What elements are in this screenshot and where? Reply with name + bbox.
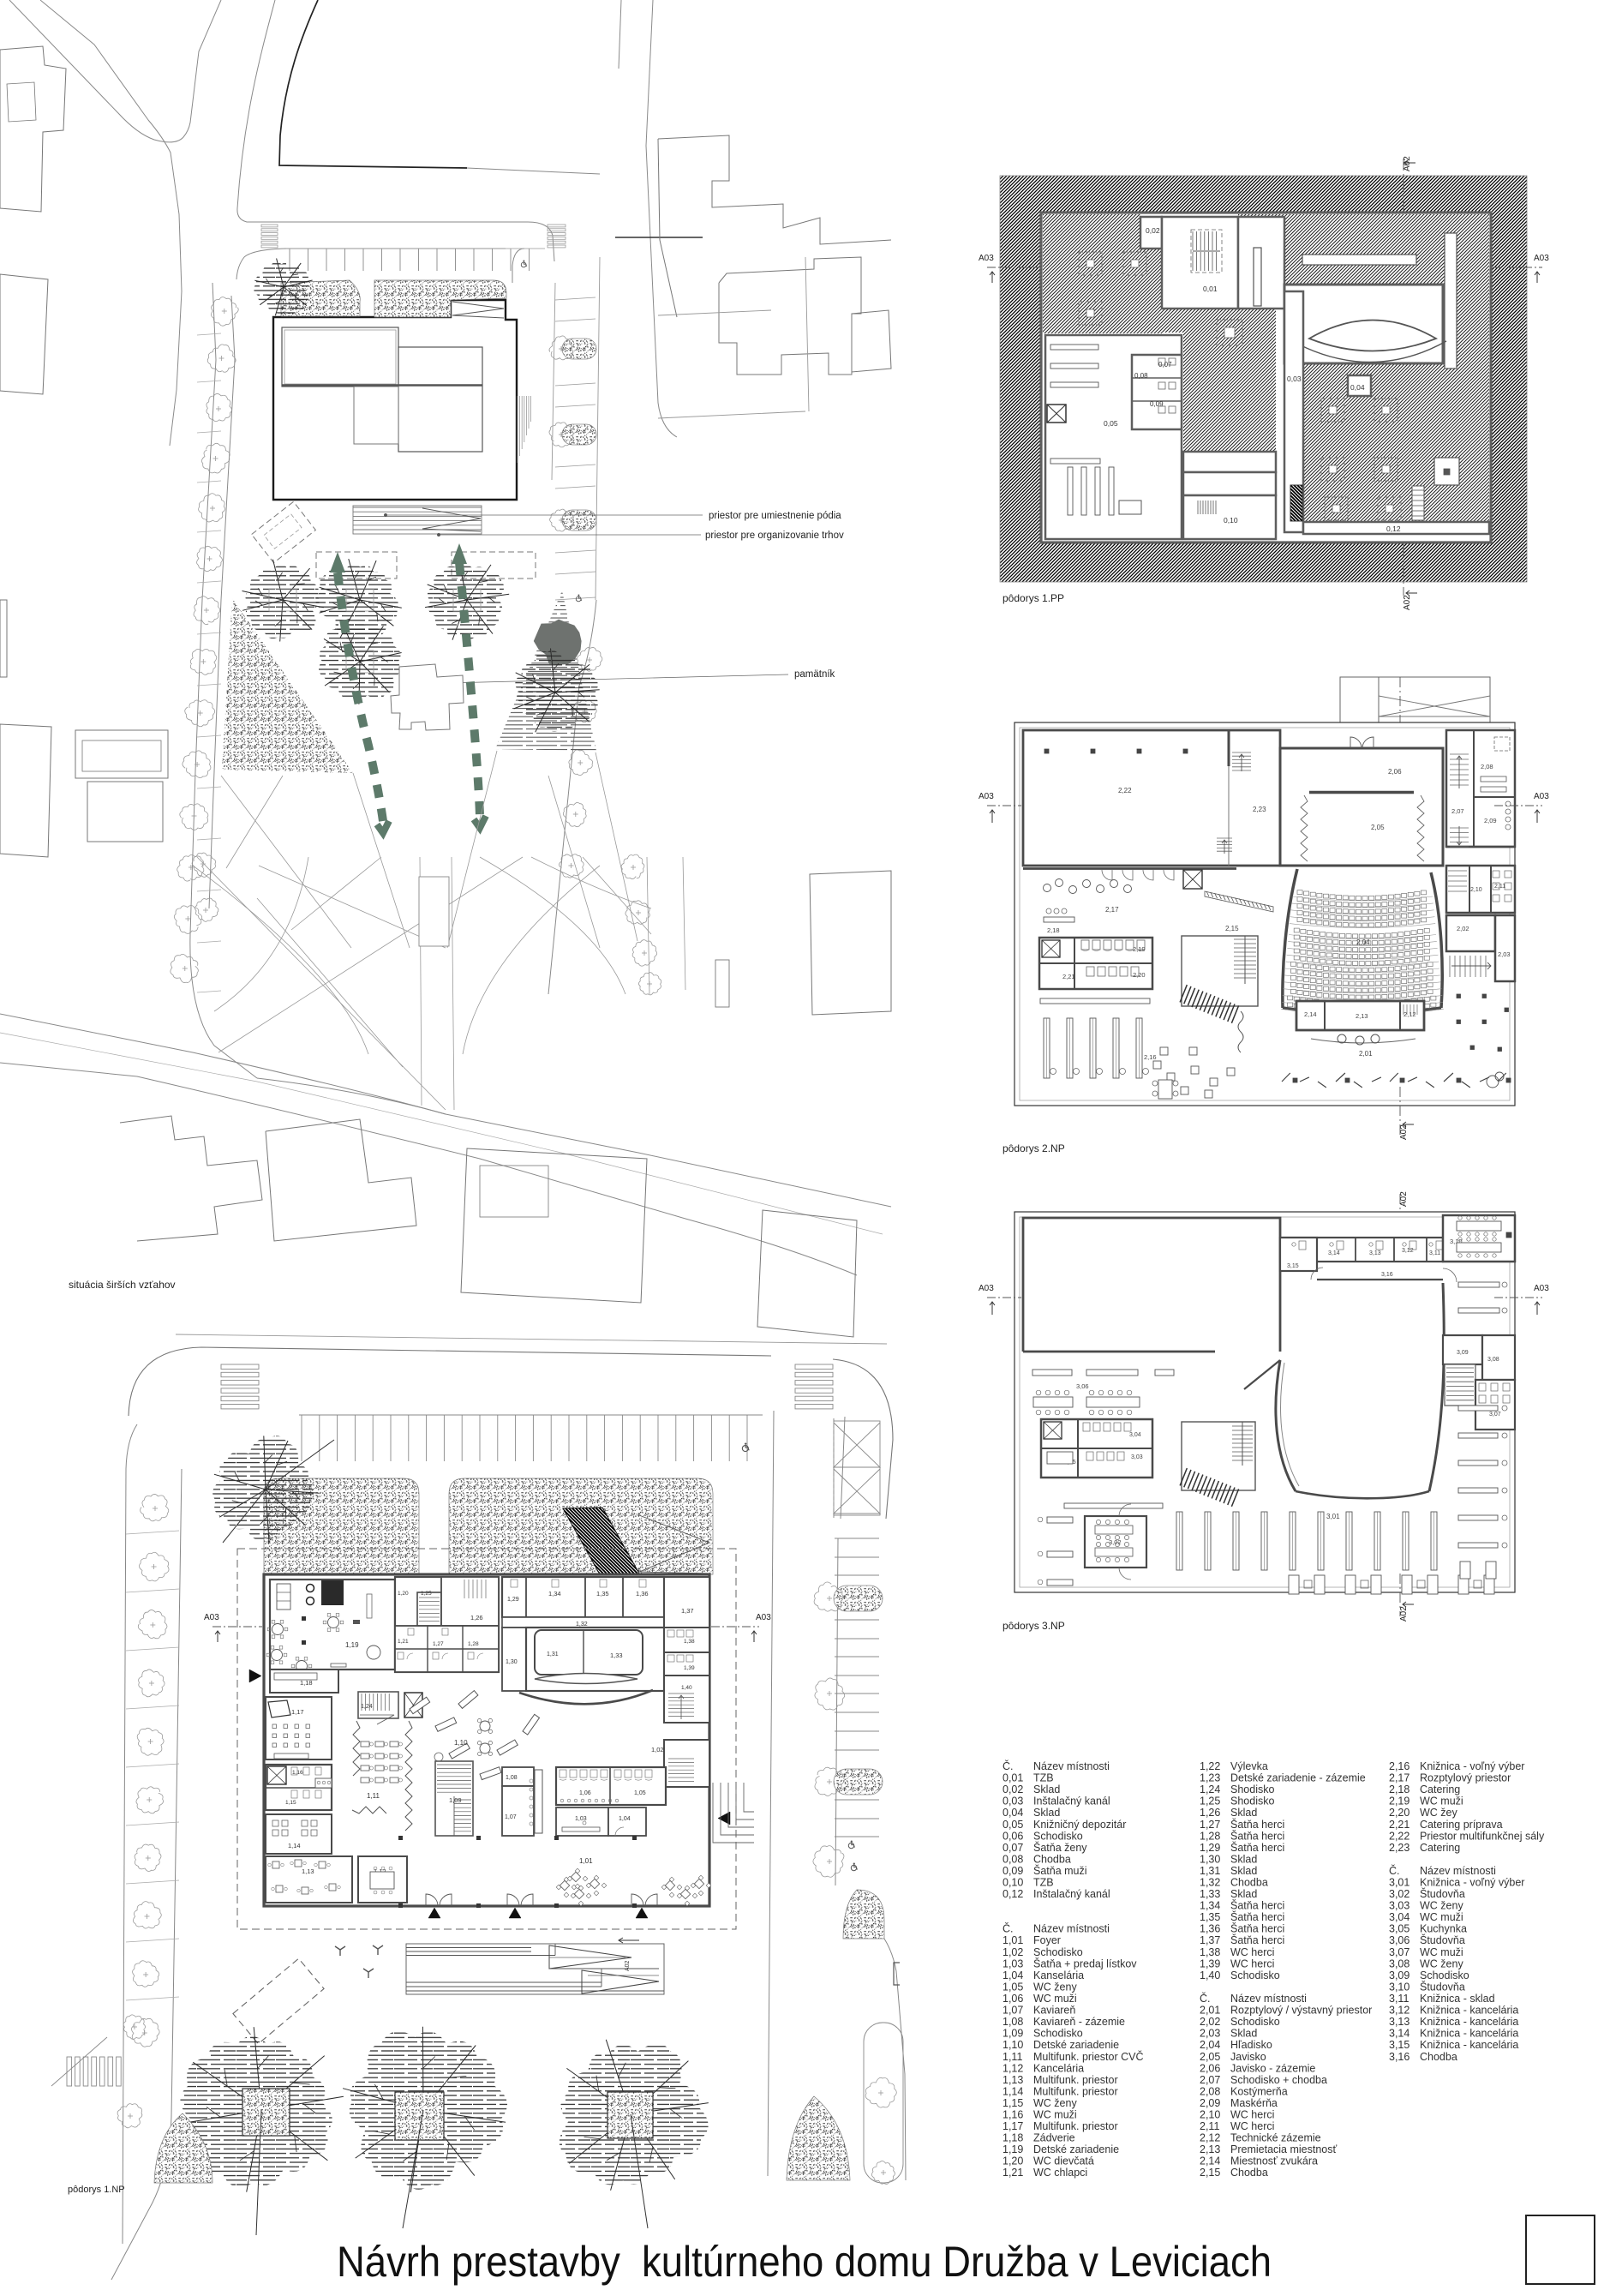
svg-text:A02: A02: [1403, 156, 1412, 171]
svg-text:Schodisko: Schodisko: [1230, 2016, 1280, 2028]
svg-text:2,07: 2,07: [1451, 807, 1464, 815]
svg-text:Sklad: Sklad: [1230, 1865, 1257, 1877]
svg-text:3,15: 3,15: [1287, 1263, 1299, 1269]
svg-text:WC ženy: WC ženy: [1420, 1957, 1463, 1969]
svg-text:1,36: 1,36: [636, 1590, 649, 1598]
svg-text:Šatňa herci: Šatňa herci: [1230, 1922, 1284, 1935]
svg-text:2,04: 2,04: [1200, 2039, 1220, 2051]
svg-text:priestor pre organizovanie trh: priestor pre organizovanie trhov: [705, 531, 844, 541]
svg-text:Kancelária: Kancelária: [1033, 2062, 1084, 2074]
svg-text:2,19: 2,19: [1389, 1795, 1409, 1807]
svg-text:3,09: 3,09: [1389, 1969, 1409, 1981]
svg-text:3,13: 3,13: [1369, 1250, 1381, 1256]
svg-text:Inštalačný kanál: Inštalačný kanál: [1033, 1888, 1110, 1900]
svg-text:2,18: 2,18: [1047, 926, 1060, 934]
svg-text:1,31: 1,31: [547, 1652, 559, 1658]
svg-text:pamätník: pamätník: [794, 669, 835, 680]
svg-text:WC herci: WC herci: [1230, 2120, 1274, 2132]
svg-text:1,03: 1,03: [1002, 1957, 1023, 1969]
svg-text:3,11: 3,11: [1429, 1250, 1440, 1256]
svg-text:Chodba: Chodba: [1230, 2167, 1268, 2179]
svg-text:2,19: 2,19: [1133, 945, 1146, 953]
svg-text:1,05: 1,05: [634, 1790, 646, 1796]
svg-text:3,14: 3,14: [1328, 1250, 1340, 1256]
svg-text:A02: A02: [1403, 595, 1412, 610]
svg-text:1,39: 1,39: [1200, 1957, 1220, 1969]
svg-text:3,12: 3,12: [1389, 2005, 1409, 2017]
svg-text:0,12: 0,12: [1386, 525, 1401, 533]
svg-text:1,23: 1,23: [1200, 1772, 1220, 1784]
svg-text:0,02: 0,02: [1146, 226, 1160, 235]
svg-text:Detské zariadenie - zázemie: Detské zariadenie - zázemie: [1230, 1772, 1366, 1784]
svg-text:1,17: 1,17: [1002, 2120, 1023, 2132]
svg-text:Sklad: Sklad: [1033, 1783, 1060, 1795]
svg-text:1,04: 1,04: [1002, 1969, 1023, 1981]
svg-text:Zádverie: Zádverie: [1033, 2132, 1075, 2144]
svg-text:Rozptylový priestor: Rozptylový priestor: [1420, 1772, 1511, 1784]
svg-text:0,08: 0,08: [1002, 1853, 1023, 1865]
svg-text:1,12: 1,12: [1002, 2062, 1023, 2074]
svg-text:1,36: 1,36: [1200, 1923, 1220, 1935]
svg-text:Chodba: Chodba: [1230, 1877, 1268, 1889]
svg-text:1,33: 1,33: [610, 1652, 623, 1659]
svg-text:pôdorys 1.NP: pôdorys 1.NP: [68, 2185, 125, 2195]
svg-text:Maskérňa: Maskérňa: [1230, 2097, 1278, 2109]
svg-text:1,13: 1,13: [302, 1867, 314, 1875]
svg-text:Návrh prestavby kultúrneho do: Návrh prestavby kultúrneho domu Družba v…: [337, 2238, 1272, 2286]
svg-text:WC dievčatá: WC dievčatá: [1033, 2155, 1094, 2167]
svg-text:Název místnosti: Název místnosti: [1033, 1923, 1110, 1935]
svg-text:Kuchynka: Kuchynka: [1420, 1923, 1467, 1935]
svg-text:1,10: 1,10: [454, 1739, 468, 1747]
svg-text:1,38: 1,38: [684, 1639, 695, 1645]
svg-text:2,17: 2,17: [1105, 906, 1119, 914]
svg-text:Šatňa ženy: Šatňa ženy: [1033, 1841, 1087, 1854]
svg-text:Multifunk. priestor: Multifunk. priestor: [1033, 2085, 1118, 2097]
svg-text:2,16: 2,16: [1389, 1760, 1409, 1772]
svg-text:1,14: 1,14: [288, 1842, 301, 1849]
svg-text:2,11: 2,11: [1494, 884, 1505, 890]
svg-text:1,02: 1,02: [651, 1746, 664, 1753]
svg-text:1,37: 1,37: [681, 1607, 694, 1615]
svg-text:A02: A02: [1399, 1606, 1409, 1622]
svg-text:Detské zariadenie: Detské zariadenie: [1033, 2143, 1119, 2155]
svg-text:1,01: 1,01: [579, 1857, 593, 1865]
svg-text:1,35: 1,35: [1200, 1911, 1220, 1923]
svg-text:A03: A03: [1534, 254, 1549, 263]
svg-text:2,05: 2,05: [1200, 2051, 1220, 2063]
svg-text:1,13: 1,13: [1002, 2074, 1023, 2086]
svg-text:A03: A03: [756, 1613, 771, 1622]
svg-text:0,01: 0,01: [1203, 285, 1218, 293]
svg-text:0,04: 0,04: [1002, 1807, 1023, 1819]
svg-text:0,06: 0,06: [1002, 1830, 1023, 1842]
svg-text:2,10: 2,10: [1200, 2109, 1220, 2121]
svg-text:WC muži: WC muži: [1033, 2109, 1077, 2121]
svg-text:1,31: 1,31: [1200, 1865, 1220, 1877]
svg-text:3,15: 3,15: [1389, 2039, 1409, 2051]
svg-text:Kostýmerňa: Kostýmerňa: [1230, 2085, 1288, 2097]
svg-text:1,28: 1,28: [1200, 1830, 1220, 1842]
svg-text:2,13: 2,13: [1200, 2143, 1220, 2155]
svg-text:Č.: Č.: [1002, 1922, 1014, 1935]
svg-text:3,06: 3,06: [1389, 1934, 1409, 1946]
svg-text:1,27: 1,27: [433, 1641, 444, 1647]
svg-text:3,07: 3,07: [1389, 1946, 1409, 1958]
svg-text:Multifunk. priestor: Multifunk. priestor: [1033, 2120, 1118, 2132]
svg-text:2,12: 2,12: [1200, 2132, 1220, 2144]
svg-text:2,21: 2,21: [1389, 1819, 1409, 1831]
svg-text:2,06: 2,06: [1200, 2062, 1220, 2074]
svg-text:pôdorys 2.NP: pôdorys 2.NP: [1002, 1142, 1065, 1154]
svg-text:2,03: 2,03: [1200, 2028, 1220, 2040]
svg-text:2,21: 2,21: [1062, 973, 1075, 980]
svg-text:2,22: 2,22: [1389, 1830, 1409, 1842]
svg-text:Technické zázemie: Technické zázemie: [1230, 2132, 1321, 2144]
svg-text:1,40: 1,40: [681, 1685, 692, 1691]
svg-text:3,10: 3,10: [1389, 1981, 1409, 1993]
svg-text:0,03: 0,03: [1287, 375, 1302, 383]
svg-text:Sklad: Sklad: [1230, 1853, 1257, 1865]
svg-text:Rozptylový / výstavný priestor: Rozptylový / výstavný priestor: [1230, 2005, 1372, 2017]
svg-text:1,07: 1,07: [1002, 2005, 1023, 2017]
svg-text:1,26: 1,26: [470, 1614, 483, 1622]
svg-text:WC muži: WC muži: [1420, 1946, 1463, 1958]
svg-text:0,03: 0,03: [1002, 1795, 1023, 1807]
svg-text:Č.: Č.: [1200, 1992, 1211, 2005]
svg-text:Knižnica - voľný výber: Knižnica - voľný výber: [1420, 1877, 1524, 1889]
svg-text:0,10: 0,10: [1224, 516, 1238, 525]
svg-text:1,15: 1,15: [1002, 2097, 1023, 2109]
svg-text:Detské zariadenie: Detské zariadenie: [1033, 2039, 1119, 2051]
svg-text:Schodisko: Schodisko: [1420, 1969, 1469, 1981]
svg-text:Kanselária: Kanselária: [1033, 1969, 1084, 1981]
svg-text:WC muži: WC muži: [1033, 1993, 1077, 2005]
svg-text:3,03: 3,03: [1131, 1454, 1143, 1460]
svg-text:3,06: 3,06: [1076, 1382, 1089, 1390]
svg-text:Chodba: Chodba: [1033, 1853, 1071, 1865]
svg-text:2,18: 2,18: [1389, 1783, 1409, 1795]
svg-text:WC muži: WC muži: [1420, 1911, 1463, 1923]
svg-text:Šatňa herci: Šatňa herci: [1230, 1933, 1284, 1946]
svg-text:Hľadisko: Hľadisko: [1230, 2039, 1272, 2051]
svg-text:2,14: 2,14: [1304, 1010, 1317, 1018]
svg-text:Šatňa + predaj lístkov: Šatňa + predaj lístkov: [1033, 1957, 1137, 1969]
svg-text:1,17: 1,17: [291, 1708, 304, 1716]
svg-text:1,39: 1,39: [684, 1665, 695, 1671]
svg-text:Catering: Catering: [1420, 1783, 1460, 1795]
svg-text:0,07: 0,07: [1002, 1842, 1023, 1854]
svg-text:3,05: 3,05: [1389, 1923, 1409, 1935]
svg-text:2,04: 2,04: [1356, 938, 1370, 946]
svg-text:A03: A03: [979, 792, 994, 801]
svg-text:Schodisko: Schodisko: [1033, 1946, 1083, 1958]
svg-text:Catering príprava: Catering príprava: [1420, 1819, 1503, 1831]
svg-text:0,09: 0,09: [1002, 1865, 1023, 1877]
svg-text:0,12: 0,12: [1002, 1888, 1023, 1900]
svg-text:Javisko: Javisko: [1230, 2051, 1266, 2063]
svg-text:3,12: 3,12: [1402, 1248, 1414, 1254]
svg-text:1,40: 1,40: [1200, 1969, 1220, 1981]
svg-text:A03: A03: [1534, 1284, 1549, 1293]
svg-text:1,16: 1,16: [1002, 2109, 1023, 2121]
svg-text:Študovňa: Študovňa: [1420, 1980, 1465, 1993]
svg-text:3,03: 3,03: [1389, 1900, 1409, 1912]
svg-text:WC herci: WC herci: [1230, 1946, 1274, 1958]
svg-text:1,34: 1,34: [548, 1590, 561, 1598]
svg-text:3,08: 3,08: [1487, 1357, 1499, 1363]
svg-text:2,02: 2,02: [1200, 2016, 1220, 2028]
svg-text:1,38: 1,38: [1200, 1946, 1220, 1958]
svg-text:1,34: 1,34: [1200, 1900, 1220, 1912]
svg-text:1,37: 1,37: [1200, 1934, 1220, 1946]
svg-text:0,10: 0,10: [1002, 1877, 1023, 1889]
svg-text:WC ženy: WC ženy: [1033, 1981, 1077, 1993]
svg-text:Študovňa: Študovňa: [1420, 1887, 1465, 1900]
svg-text:2,13: 2,13: [1356, 1012, 1368, 1020]
svg-text:2,11: 2,11: [1200, 2120, 1219, 2132]
svg-text:Sklad: Sklad: [1230, 2028, 1257, 2040]
svg-text:Šatňa herci: Šatňa herci: [1230, 1829, 1284, 1842]
svg-text:2,02: 2,02: [1457, 925, 1469, 932]
svg-text:2,10: 2,10: [1470, 887, 1482, 893]
svg-text:Chodba: Chodba: [1420, 2051, 1457, 2063]
svg-text:Inštalačný kanál: Inštalačný kanál: [1033, 1795, 1110, 1807]
svg-text:Kaviareň: Kaviareň: [1033, 2005, 1075, 2017]
svg-text:2,23: 2,23: [1389, 1842, 1409, 1854]
svg-text:2,08: 2,08: [1481, 763, 1493, 770]
svg-text:3,04: 3,04: [1389, 1911, 1409, 1923]
svg-text:WC herci: WC herci: [1230, 1957, 1274, 1969]
svg-text:2,08: 2,08: [1200, 2085, 1220, 2097]
svg-text:Kaviareň - zázemie: Kaviareň - zázemie: [1033, 2016, 1125, 2028]
svg-text:1,35: 1,35: [596, 1590, 609, 1598]
svg-text:1,29: 1,29: [507, 1597, 519, 1603]
svg-text:3,09: 3,09: [1457, 1350, 1469, 1356]
svg-text:Č.: Č.: [1002, 1759, 1014, 1772]
svg-text:1,24: 1,24: [361, 1704, 373, 1710]
svg-text:Multifunk. priestor CVČ: Multifunk. priestor CVČ: [1033, 2050, 1144, 2063]
svg-text:0,09: 0,09: [1150, 400, 1164, 408]
svg-text:1,19: 1,19: [1002, 2143, 1023, 2155]
svg-text:Šatňa herci: Šatňa herci: [1230, 1899, 1284, 1912]
svg-text:WC muži: WC muži: [1420, 1795, 1463, 1807]
svg-text:Catering: Catering: [1420, 1842, 1460, 1854]
svg-text:1,32: 1,32: [1200, 1877, 1220, 1889]
svg-text:3,16: 3,16: [1381, 1272, 1393, 1278]
svg-text:2,01: 2,01: [1200, 2005, 1220, 2017]
svg-text:1,04: 1,04: [619, 1816, 631, 1822]
svg-text:0,02: 0,02: [1002, 1783, 1023, 1795]
svg-text:Knižnica - voľný výber: Knižnica - voľný výber: [1420, 1760, 1524, 1772]
svg-text:2,23: 2,23: [1253, 806, 1266, 813]
svg-text:2,05: 2,05: [1371, 824, 1385, 831]
svg-text:1,01: 1,01: [1002, 1934, 1023, 1946]
svg-text:1,19: 1,19: [345, 1641, 359, 1649]
svg-text:Knižnica - kancelária: Knižnica - kancelária: [1420, 2039, 1518, 2051]
svg-text:Název místnosti: Název místnosti: [1230, 1993, 1307, 2005]
svg-text:WC chlapci: WC chlapci: [1033, 2167, 1087, 2179]
svg-text:1,33: 1,33: [1200, 1888, 1220, 1900]
svg-text:1,24: 1,24: [1200, 1783, 1220, 1795]
svg-text:2,09: 2,09: [1484, 817, 1497, 824]
svg-text:A02: A02: [625, 1960, 631, 1971]
svg-text:Schodisko: Schodisko: [1230, 1969, 1280, 1981]
svg-text:1,28: 1,28: [468, 1641, 479, 1647]
svg-text:1,30: 1,30: [506, 1659, 518, 1665]
svg-text:1,11: 1,11: [367, 1792, 380, 1800]
svg-text:2,07: 2,07: [1200, 2074, 1220, 2086]
svg-text:WC herci: WC herci: [1230, 2109, 1274, 2121]
svg-text:1,05: 1,05: [1002, 1981, 1023, 1993]
svg-text:2,20: 2,20: [1389, 1807, 1409, 1819]
svg-text:3,11: 3,11: [1389, 1993, 1409, 2005]
svg-text:2,01: 2,01: [1359, 1050, 1373, 1058]
svg-text:3,13: 3,13: [1389, 2016, 1409, 2028]
svg-text:Shodisko: Shodisko: [1230, 1783, 1274, 1795]
svg-text:3,02: 3,02: [1389, 1888, 1409, 1900]
svg-text:A02: A02: [1399, 1191, 1409, 1207]
svg-text:Foyer: Foyer: [1033, 1934, 1061, 1946]
svg-text:Miestnosť zvukára: Miestnosť zvukára: [1230, 2155, 1318, 2167]
svg-text:1,08: 1,08: [506, 1775, 518, 1781]
svg-text:1,14: 1,14: [1002, 2085, 1023, 2097]
svg-text:Schodisko: Schodisko: [1033, 1830, 1083, 1842]
svg-text:2,15: 2,15: [1200, 2167, 1220, 2179]
svg-text:A02: A02: [1399, 1124, 1409, 1140]
svg-text:Šatňa herci: Šatňa herci: [1230, 1910, 1284, 1923]
svg-text:pôdorys 1.PP: pôdorys 1.PP: [1002, 592, 1064, 604]
svg-text:1,25: 1,25: [1200, 1795, 1220, 1807]
svg-text:situácia širších vzťahov: situácia širších vzťahov: [69, 1279, 176, 1291]
svg-text:1,09: 1,09: [449, 1796, 462, 1804]
svg-text:1,20: 1,20: [1002, 2155, 1023, 2167]
svg-text:1,18: 1,18: [1002, 2132, 1023, 2144]
svg-text:1,10: 1,10: [1002, 2039, 1023, 2051]
svg-text:priestor pre umiestnenie pódia: priestor pre umiestnenie pódia: [709, 511, 841, 521]
svg-text:0,01: 0,01: [1002, 1772, 1023, 1784]
svg-text:Schodisko + chodba: Schodisko + chodba: [1230, 2074, 1327, 2086]
svg-text:A03: A03: [979, 254, 994, 263]
svg-text:2,15: 2,15: [1225, 925, 1239, 932]
svg-text:2,09: 2,09: [1200, 2097, 1220, 2109]
svg-text:Výlevka: Výlevka: [1230, 1760, 1268, 1772]
svg-text:2,16: 2,16: [1144, 1053, 1157, 1061]
svg-text:Šatňa herci: Šatňa herci: [1230, 1818, 1284, 1831]
svg-text:3,16: 3,16: [1389, 2051, 1409, 2063]
svg-text:Študovňa: Študovňa: [1420, 1933, 1465, 1946]
svg-text:Premietacia miestnosť: Premietacia miestnosť: [1230, 2143, 1337, 2155]
svg-text:1,02: 1,02: [1002, 1946, 1023, 1958]
svg-text:A03: A03: [204, 1613, 219, 1622]
svg-text:Název místnosti: Název místnosti: [1033, 1760, 1110, 1772]
svg-text:Sklad: Sklad: [1230, 1888, 1257, 1900]
svg-text:1,22: 1,22: [1200, 1760, 1220, 1772]
svg-text:1,15: 1,15: [285, 1800, 296, 1806]
svg-text:Knižnica - kancelária: Knižnica - kancelária: [1420, 2005, 1518, 2017]
svg-text:Schodisko: Schodisko: [1033, 2028, 1083, 2040]
svg-text:Šatňa muži: Šatňa muži: [1033, 1864, 1087, 1877]
svg-text:Knižnica - kancelária: Knižnica - kancelária: [1420, 2016, 1518, 2028]
svg-text:1,07: 1,07: [505, 1814, 517, 1820]
svg-text:2,06: 2,06: [1388, 768, 1402, 776]
svg-text:WC žey: WC žey: [1420, 1807, 1458, 1819]
svg-text:Č.: Č.: [1389, 1864, 1400, 1877]
svg-text:2,14: 2,14: [1200, 2155, 1220, 2167]
svg-text:Priestor multifunkčnej sály: Priestor multifunkčnej sály: [1420, 1830, 1545, 1842]
svg-text:1,29: 1,29: [1200, 1842, 1220, 1854]
svg-text:3,14: 3,14: [1389, 2028, 1409, 2040]
svg-text:1,26: 1,26: [1200, 1807, 1220, 1819]
svg-text:1,20: 1,20: [398, 1591, 409, 1597]
svg-text:1,11: 1,11: [1002, 2051, 1022, 2063]
svg-text:1,21: 1,21: [398, 1639, 409, 1645]
svg-text:Sklad: Sklad: [1230, 1807, 1257, 1819]
svg-text:2,12: 2,12: [1403, 1010, 1416, 1018]
svg-text:Název místnosti: Název místnosti: [1420, 1865, 1496, 1877]
svg-text:Javisko - zázemie: Javisko - zázemie: [1230, 2062, 1315, 2074]
svg-text:WC ženy: WC ženy: [1033, 2097, 1077, 2109]
svg-text:0,05: 0,05: [1002, 1819, 1023, 1831]
svg-text:1,27: 1,27: [1200, 1819, 1220, 1831]
svg-text:3,08: 3,08: [1389, 1957, 1409, 1969]
svg-text:Multifunk. priestor: Multifunk. priestor: [1033, 2074, 1118, 2086]
svg-text:A03: A03: [979, 1284, 994, 1293]
svg-text:1,30: 1,30: [1200, 1853, 1220, 1865]
svg-text:1,21: 1,21: [1002, 2167, 1023, 2179]
svg-text:2,17: 2,17: [1389, 1772, 1409, 1784]
svg-text:3,04: 3,04: [1129, 1432, 1141, 1438]
svg-text:2,03: 2,03: [1498, 950, 1511, 958]
svg-text:TZB: TZB: [1033, 1877, 1054, 1889]
svg-text:1,25: 1,25: [421, 1591, 432, 1597]
svg-text:3,07: 3,07: [1489, 1412, 1501, 1418]
svg-text:1,09: 1,09: [1002, 2028, 1023, 2040]
svg-text:1,06: 1,06: [1002, 1993, 1023, 2005]
svg-text:0,05: 0,05: [1104, 419, 1118, 428]
svg-text:Šatňa herci: Šatňa herci: [1230, 1841, 1284, 1854]
svg-text:pôdorys 3.NP: pôdorys 3.NP: [1002, 1620, 1065, 1632]
svg-text:0,08: 0,08: [1134, 372, 1148, 380]
svg-text:2,22: 2,22: [1118, 787, 1132, 794]
svg-text:WC ženy: WC ženy: [1420, 1900, 1463, 1912]
svg-text:TZB: TZB: [1033, 1772, 1054, 1784]
svg-text:3,01: 3,01: [1326, 1513, 1340, 1520]
svg-text:0,04: 0,04: [1350, 383, 1365, 392]
svg-text:1,06: 1,06: [579, 1790, 591, 1796]
svg-text:Knižnica - sklad: Knižnica - sklad: [1420, 1993, 1495, 2005]
svg-text:Knižničný depozitár: Knižničný depozitár: [1033, 1819, 1126, 1831]
svg-text:Shodisko: Shodisko: [1230, 1795, 1274, 1807]
svg-text:Knižnica - kancelária: Knižnica - kancelária: [1420, 2028, 1518, 2040]
svg-text:Sklad: Sklad: [1033, 1807, 1060, 1819]
svg-text:A03: A03: [1534, 792, 1549, 801]
svg-text:1,08: 1,08: [1002, 2016, 1023, 2028]
svg-text:3,01: 3,01: [1389, 1877, 1409, 1889]
